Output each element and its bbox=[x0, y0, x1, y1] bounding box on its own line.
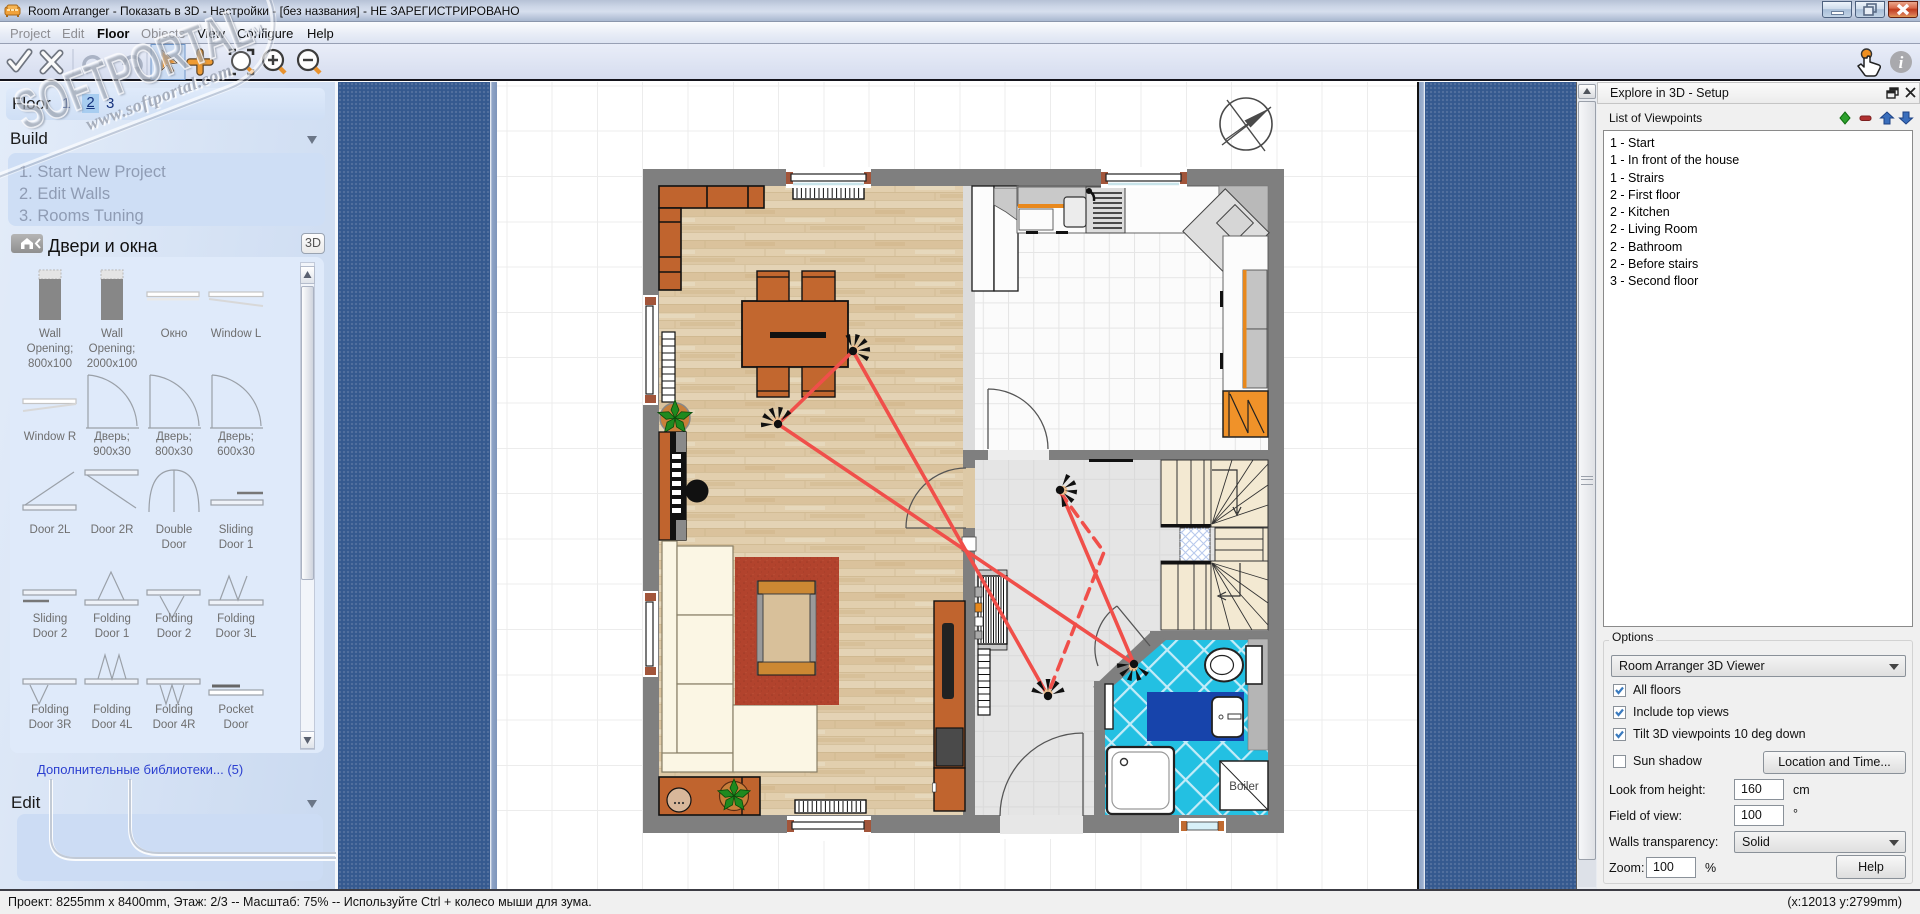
svg-text:Boiler: Boiler bbox=[1229, 781, 1259, 793]
svg-text:i: i bbox=[1899, 53, 1904, 72]
